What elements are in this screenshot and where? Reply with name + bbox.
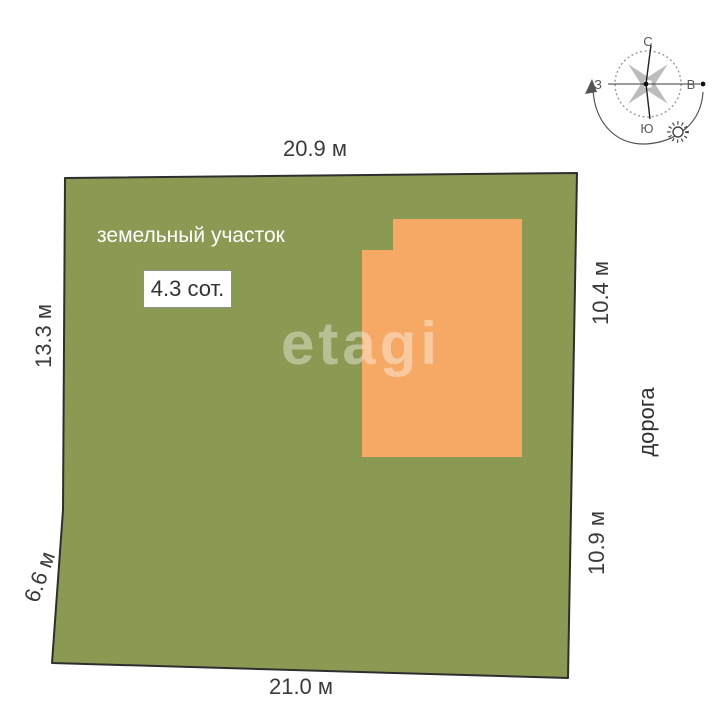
watermark: etagi (281, 314, 441, 374)
compass-east-label: В (687, 77, 696, 92)
area-badge: 4.3 сот. (143, 270, 232, 308)
plot-title: земельный участок (97, 224, 285, 248)
compass-north-label: С (643, 34, 652, 49)
compass-center-dot (644, 82, 649, 87)
compass-rose: С Ю З В (585, 34, 705, 144)
site-plan: С Ю З В 20.9 м 21.0 м 13.3 м 6.6 м 10.4 … (0, 0, 725, 725)
compass-east-dot (701, 82, 706, 87)
compass-south-label: Ю (640, 121, 653, 136)
dimension-left-upper: 13.3 м (31, 266, 57, 406)
dimension-right-upper: 10.4 м (588, 223, 614, 363)
compass-west-label: З (594, 77, 602, 92)
road-label: дорога (634, 352, 660, 492)
dimension-bottom: 21.0 м (221, 674, 381, 700)
dimension-top: 20.9 м (235, 136, 395, 162)
dimension-right-lower: 10.9 м (584, 473, 610, 613)
